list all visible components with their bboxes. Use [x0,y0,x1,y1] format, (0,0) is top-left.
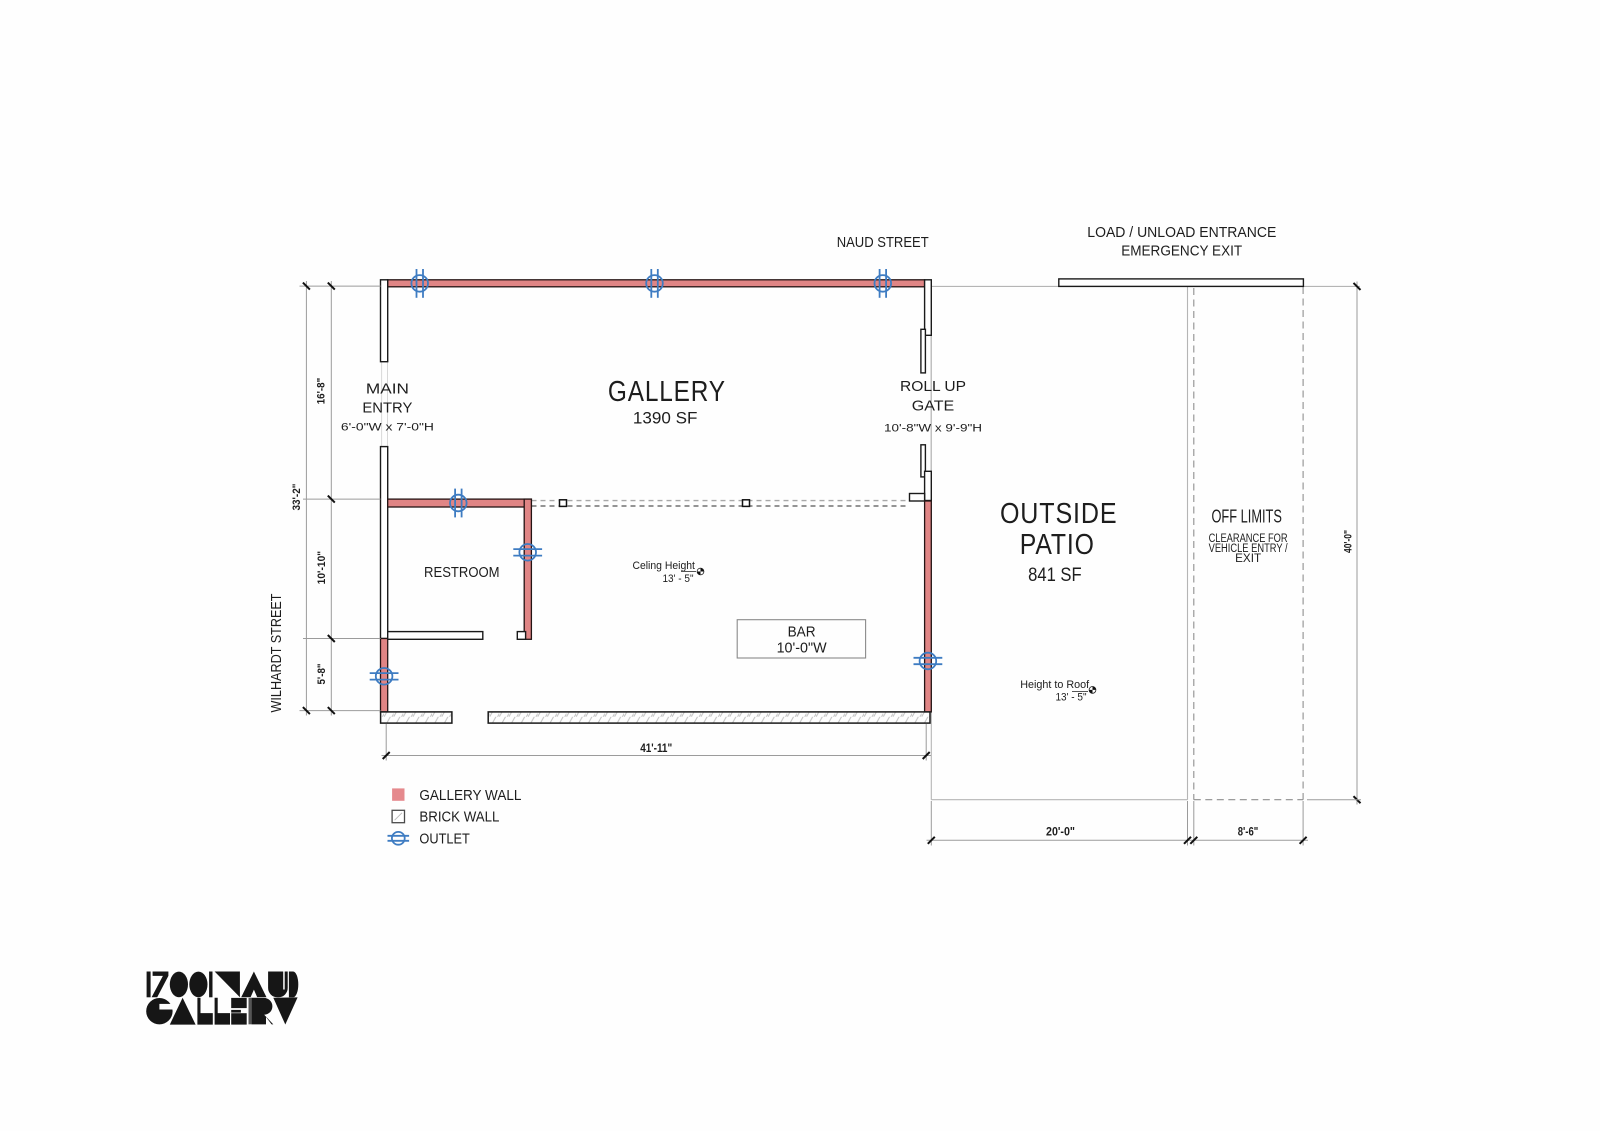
svg-text:16'-8": 16'-8" [316,378,328,405]
svg-text:10'-8"W x 9'-9"H: 10'-8"W x 9'-9"H [884,423,982,435]
svg-text:ENTRY: ENTRY [362,399,412,416]
svg-text:10'-0"W: 10'-0"W [777,640,828,657]
svg-text:NAUD STREET: NAUD STREET [837,234,929,251]
svg-text:GALLERY: GALLERY [608,376,726,408]
svg-text:LOAD / UNLOAD ENTRANCE: LOAD / UNLOAD ENTRANCE [1087,224,1276,241]
svg-text:40'-0": 40'-0" [1343,530,1355,553]
svg-text:8'-6": 8'-6" [1238,824,1259,838]
svg-text:1390 SF: 1390 SF [633,409,698,428]
svg-text:MAIN: MAIN [366,381,409,398]
svg-text:WILHARDT STREET: WILHARDT STREET [268,594,285,713]
svg-text:OUTSIDE: OUTSIDE [1000,498,1118,530]
svg-text:10'-10": 10'-10" [316,551,328,585]
svg-text:6'-0"W x 7'-0"H: 6'-0"W x 7'-0"H [341,421,434,433]
svg-text:PATIO: PATIO [1020,529,1095,561]
svg-text:841 SF: 841 SF [1028,565,1082,586]
svg-text:OUTLET: OUTLET [419,831,470,848]
svg-text:5'-8": 5'-8" [316,664,328,685]
svg-text:13' - 5": 13' - 5" [1056,692,1087,704]
svg-text:13' - 5": 13' - 5" [663,573,694,585]
svg-text:GATE: GATE [912,397,955,414]
svg-text:20'-0": 20'-0" [1046,824,1075,838]
svg-text:Height to Roof: Height to Roof [1020,679,1090,691]
svg-text:EXIT: EXIT [1235,553,1261,565]
svg-text:EMERGENCY EXIT: EMERGENCY EXIT [1121,243,1242,260]
svg-text:33'-2": 33'-2" [291,484,303,511]
svg-text:41'-11": 41'-11" [640,741,672,755]
svg-text:BAR: BAR [788,623,816,640]
svg-text:GALLERY WALL: GALLERY WALL [419,787,521,804]
svg-text:ROLL UP: ROLL UP [900,378,966,395]
svg-text:Celing Height: Celing Height [632,560,695,572]
svg-text:RESTROOM: RESTROOM [424,564,500,581]
svg-text:BRICK WALL: BRICK WALL [419,809,499,826]
svg-text:OFF LIMITS: OFF LIMITS [1211,507,1282,527]
